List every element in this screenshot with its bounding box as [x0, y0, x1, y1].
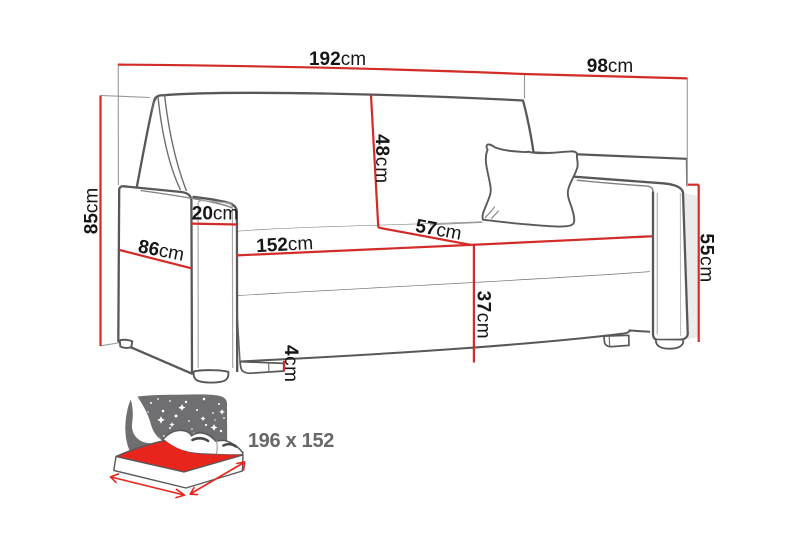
svg-text:85cm: 85cm: [82, 188, 103, 234]
svg-text:4cm: 4cm: [280, 345, 301, 382]
svg-text:20cm: 20cm: [192, 204, 238, 225]
svg-text:196 x 152: 196 x 152: [248, 430, 334, 452]
svg-text:192cm: 192cm: [309, 49, 366, 70]
svg-text:37cm: 37cm: [473, 291, 494, 339]
svg-text:48cm: 48cm: [371, 134, 392, 184]
svg-text:55cm: 55cm: [695, 233, 716, 283]
svg-text:152cm: 152cm: [256, 233, 314, 257]
svg-text:98cm: 98cm: [587, 56, 633, 77]
